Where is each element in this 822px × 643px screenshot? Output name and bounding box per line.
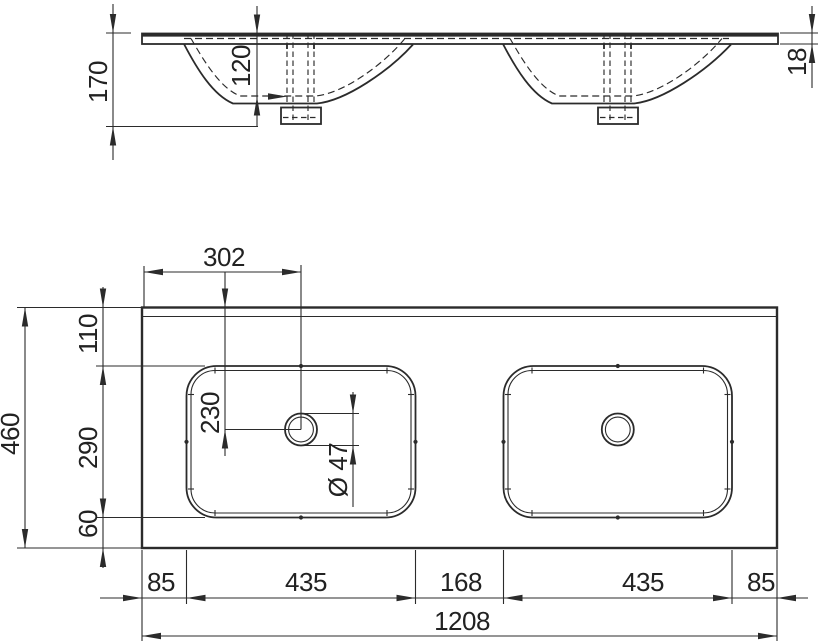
dim-total-depth: 460: [0, 308, 142, 549]
right-bowl-hidden-profile: [510, 39, 722, 97]
dim-drain-diameter-label: Ø 47: [323, 443, 353, 497]
right-bowl-outer-profile: [503, 44, 731, 104]
dim-front-offset-label: 60: [73, 510, 103, 538]
dim-total-height-label: 170: [83, 61, 113, 103]
plan-right-basin: [501, 364, 734, 520]
left-drain-flange: [281, 108, 321, 125]
dim-center-gap-label: 168: [440, 567, 482, 597]
dim-total-depth-label: 460: [0, 413, 25, 455]
right-drain-hole-outer: [602, 414, 634, 446]
dim-drain-left-offset-label: 302: [203, 242, 245, 272]
elevation-right-basin: [503, 34, 731, 125]
right-drain-hole-inner: [605, 417, 630, 442]
dim-slab-thickness-label: 18: [782, 48, 812, 76]
dim-basin-depth-label: 120: [226, 45, 256, 87]
dim-basin-inner-depth-label: 290: [73, 427, 103, 469]
technical-drawing: 170 120 18: [0, 0, 822, 643]
dim-drain-diameter: Ø 47: [302, 392, 359, 507]
right-drain-flange: [598, 108, 638, 125]
dim-drain-back-offset-label: 230: [195, 392, 225, 434]
dim-right-basin-width-label: 435: [622, 567, 664, 597]
left-bowl-outer-profile: [184, 44, 413, 104]
elevation-dimensions: 170 120 18: [83, 4, 818, 160]
dim-overall-width: 1208: [142, 606, 777, 639]
drawing-canvas: 170 120 18: [0, 0, 822, 643]
countertop-plan-outline: [142, 308, 777, 549]
plan-dimensions: 302 230 110 290 60: [0, 242, 808, 641]
dim-basin-depth: 120: [226, 6, 287, 127]
dim-left-basin-width-label: 435: [285, 567, 327, 597]
dim-left-margin-label: 85: [147, 567, 175, 597]
left-bowl-hidden-profile: [191, 39, 405, 97]
dim-overall-width-label: 1208: [434, 606, 490, 636]
plan-view: [142, 308, 777, 549]
elevation-left-basin: [184, 34, 413, 125]
dim-depth-chain: 110 290 60: [73, 287, 205, 568]
dim-slab-thickness: 18: [780, 6, 818, 88]
dim-right-margin-label: 85: [747, 567, 775, 597]
dim-back-offset-label: 110: [73, 314, 103, 354]
